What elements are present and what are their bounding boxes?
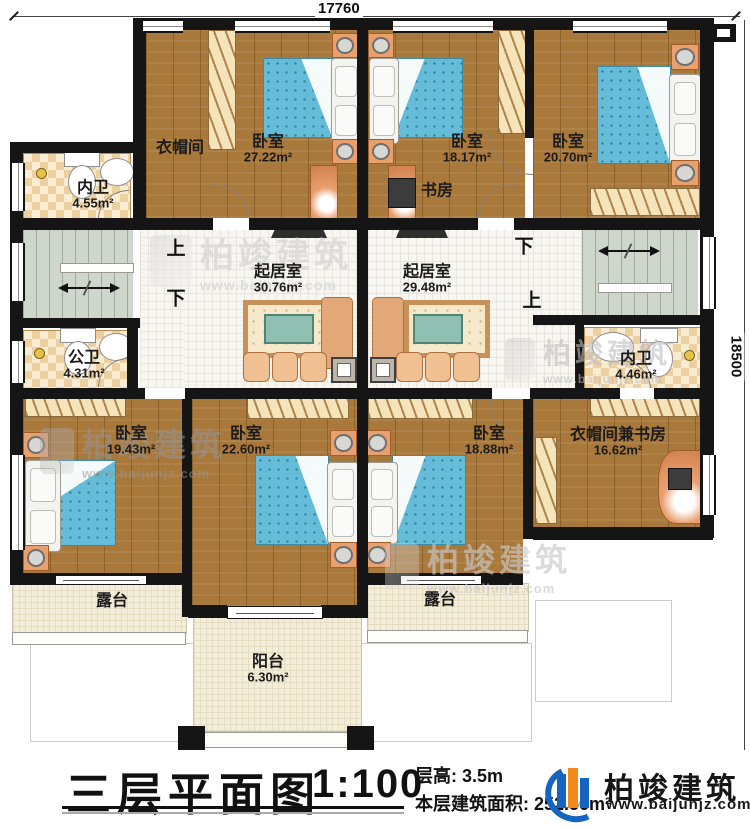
room-area: 19.43m² xyxy=(107,443,155,457)
pillow xyxy=(371,506,394,536)
bed-sheet xyxy=(256,456,328,544)
room-label-gw: 公卫4.31m² xyxy=(63,349,104,380)
wardrobe-cloakroom xyxy=(208,30,236,150)
bed-sheet xyxy=(598,67,670,163)
bed-headboard xyxy=(369,58,399,144)
room-label-rt: 露台 xyxy=(424,591,456,608)
wall xyxy=(10,318,140,328)
stair-label-down-right: 下 xyxy=(514,232,533,259)
logo-building xyxy=(557,768,589,808)
floor-plan: 内卫4.55m² 衣帽间 卧室27.22m² 卧室18.17m² 书房 卧室20… xyxy=(0,0,750,829)
title-underline-2 xyxy=(62,812,404,814)
watermark-logo-icon xyxy=(385,543,419,589)
room-label-b1943: 卧室19.43m² xyxy=(107,425,155,456)
side-table-living-2 xyxy=(370,357,396,383)
terrace-right-railing xyxy=(367,630,528,643)
chimney-inner xyxy=(717,29,730,37)
floor-height-label: 层高: 3.5m xyxy=(415,762,503,788)
watermark-logo-icon xyxy=(40,428,74,474)
wall xyxy=(523,397,533,539)
pillow xyxy=(371,469,394,499)
wall xyxy=(188,605,227,618)
floor-drain xyxy=(684,350,695,361)
dimension-right-value: 18500 xyxy=(727,333,744,381)
door-opening xyxy=(145,388,185,399)
wall xyxy=(525,18,534,138)
coffee-table-living-1 xyxy=(264,314,314,344)
wall xyxy=(10,218,713,230)
room-name: 卧室 xyxy=(443,133,491,150)
room-area: 6.30m² xyxy=(247,671,288,685)
window xyxy=(10,243,25,301)
pillow xyxy=(335,105,356,137)
room-label-nw2: 内卫4.46m² xyxy=(615,350,656,381)
bed-sheet xyxy=(264,59,332,137)
sofa-living-2 xyxy=(396,352,480,382)
room-label-b2070: 卧室20.70m² xyxy=(544,133,592,164)
stair-label-up-left: 上 xyxy=(166,234,185,261)
title-underline xyxy=(62,806,404,809)
bed-sheet xyxy=(394,59,462,137)
dimension-line-top xyxy=(12,16,740,17)
bed-mattress xyxy=(255,455,329,545)
wall xyxy=(127,320,138,396)
bed-mattress xyxy=(597,66,671,164)
watermark-logo-icon xyxy=(505,338,535,380)
stair-rail-left xyxy=(60,263,134,273)
sofa-cushion xyxy=(243,352,270,382)
stair-arrow-line xyxy=(66,287,112,289)
stair-label-up-right: 上 xyxy=(522,286,541,313)
nightstand xyxy=(671,160,699,186)
bed-headboard xyxy=(366,462,398,544)
room-name: 露台 xyxy=(424,591,456,608)
bed-headboard xyxy=(669,74,701,164)
wardrobe-bedroom-1943 xyxy=(25,397,126,417)
stairwell-left xyxy=(23,230,133,319)
balcony-railing xyxy=(200,732,349,748)
nightstand xyxy=(368,33,394,58)
wall xyxy=(321,605,368,618)
window xyxy=(235,19,330,33)
stair-arrow-right xyxy=(650,246,660,256)
dimension-line-right xyxy=(744,20,745,750)
window xyxy=(573,19,667,33)
balcony-post-left xyxy=(178,726,205,750)
plan-scale: 1:100 xyxy=(312,762,424,807)
stairwell-right xyxy=(582,228,698,318)
door-opening xyxy=(620,388,654,399)
wall xyxy=(357,388,368,614)
pillow xyxy=(332,469,355,499)
sofa-cushion xyxy=(396,352,423,382)
room-label-b2722: 卧室27.22m² xyxy=(244,133,292,164)
sliding-door-balcony xyxy=(227,606,323,619)
pillow xyxy=(30,510,56,544)
dimension-top-value: 17760 xyxy=(315,0,363,17)
door-opening xyxy=(492,388,530,399)
wall xyxy=(357,18,368,390)
room-area: 22.60m² xyxy=(222,443,270,457)
room-label-lr2: 起居室29.48m² xyxy=(403,263,451,294)
nightstand xyxy=(368,139,394,164)
pillow xyxy=(674,82,697,115)
window xyxy=(701,237,716,309)
lower-floor-outline-right xyxy=(535,600,672,702)
wall xyxy=(533,315,713,325)
nightstand xyxy=(332,139,358,164)
floor-drain xyxy=(36,168,47,179)
room-area: 30.76m² xyxy=(254,281,302,295)
floor-hall-left xyxy=(140,322,184,388)
wardrobe-bedroom-2070 xyxy=(590,188,700,216)
sofa-cushion xyxy=(300,352,327,382)
room-area: 29.48m² xyxy=(403,281,451,295)
dresser xyxy=(310,165,338,221)
wardrobe-bedroom-1817 xyxy=(498,30,527,134)
brand-logo-icon xyxy=(545,762,597,814)
coffee-table-living-2 xyxy=(413,314,463,344)
room-label-lt: 露台 xyxy=(96,592,128,609)
side-table-living-1 xyxy=(331,357,357,383)
pillow xyxy=(373,66,394,98)
watermark: 柏竣建筑www.baijunjz.com xyxy=(385,535,571,596)
watermark-brand: 柏竣建筑 xyxy=(427,535,571,581)
bed-mattress xyxy=(263,58,333,138)
door-opening xyxy=(478,218,514,230)
pillow xyxy=(332,506,355,536)
pillow xyxy=(373,105,394,137)
room-name: 卧室 xyxy=(544,133,592,150)
room-area: 4.55m² xyxy=(72,197,113,211)
nightstand xyxy=(364,430,391,456)
room-name: 书房 xyxy=(421,182,453,199)
floor-drain xyxy=(34,348,45,359)
watermark-text-block: 柏竣建筑www.baijunjz.com xyxy=(427,535,571,596)
logo-bar xyxy=(557,774,566,808)
wardrobe-bedroom-1888 xyxy=(368,397,473,419)
nightstand xyxy=(330,542,357,568)
room-name: 起居室 xyxy=(254,263,302,280)
window xyxy=(10,341,25,383)
sofa-cushion xyxy=(425,352,452,382)
wardrobe-bedroom-2260 xyxy=(247,397,349,419)
room-label-sf: 书房 xyxy=(421,182,453,199)
logo-bar xyxy=(568,768,578,808)
room-name: 内卫 xyxy=(615,350,656,367)
room-name: 露台 xyxy=(96,592,128,609)
sofa-cushion xyxy=(272,352,299,382)
room-label-lr1: 起居室30.76m² xyxy=(254,263,302,294)
room-area: 4.31m² xyxy=(63,367,104,381)
bed-headboard xyxy=(327,462,359,544)
room-name: 卧室 xyxy=(465,425,513,442)
room-label-b1888: 卧室18.88m² xyxy=(465,425,513,456)
pillow xyxy=(674,123,697,156)
stair-rail-right xyxy=(598,283,672,293)
window xyxy=(143,19,183,33)
stair-label-down-left: 下 xyxy=(166,284,185,311)
pillow xyxy=(335,66,356,98)
room-area: 18.88m² xyxy=(465,443,513,457)
nightstand xyxy=(23,545,49,571)
room-area: 16.62m² xyxy=(570,444,666,458)
stair-arrow-left xyxy=(598,246,608,256)
room-label-ym: 衣帽间 xyxy=(156,139,204,156)
bed-mattress xyxy=(393,58,463,138)
sofa-cushion xyxy=(453,352,480,382)
room-name: 卧室 xyxy=(107,425,155,442)
room-label-b1817: 卧室18.17m² xyxy=(443,133,491,164)
window xyxy=(10,455,25,550)
room-name: 公卫 xyxy=(63,349,104,366)
room-name: 内卫 xyxy=(72,179,113,196)
nightstand xyxy=(332,33,358,58)
window xyxy=(393,19,493,33)
room-area: 18.17m² xyxy=(443,151,491,165)
room-label-nw1: 内卫4.55m² xyxy=(72,179,113,210)
nightstand xyxy=(330,430,357,456)
room-name: 起居室 xyxy=(403,263,451,280)
sliding-door-terrace-left xyxy=(55,575,147,585)
stair-arrow-left xyxy=(58,283,68,293)
window xyxy=(10,163,25,211)
room-area: 4.46m² xyxy=(615,368,656,382)
wall xyxy=(133,18,146,230)
balcony-post-right xyxy=(347,726,374,750)
watermark-site: www.baijunjz.com xyxy=(82,466,226,481)
stair-arrow-right xyxy=(110,283,120,293)
room-label-yt: 阳台6.30m² xyxy=(247,653,288,684)
bed-mattress xyxy=(392,455,466,545)
room-area: 20.70m² xyxy=(544,151,592,165)
cloak-study-computer xyxy=(668,468,692,490)
room-name: 衣帽间 xyxy=(156,139,204,156)
study-computer xyxy=(388,178,416,208)
nightstand xyxy=(671,44,699,70)
logo-bar xyxy=(580,778,589,808)
room-name: 阳台 xyxy=(247,653,288,670)
room-name: 卧室 xyxy=(222,425,270,442)
brand-site: www.baijunjz.com xyxy=(606,796,750,813)
room-name: 衣帽间兼书房 xyxy=(570,426,666,443)
wardrobe-cloak-study-side xyxy=(535,437,557,524)
terrace-left-railing xyxy=(12,632,186,645)
room-area: 27.22m² xyxy=(244,151,292,165)
room-label-ymsf: 衣帽间兼书房16.62m² xyxy=(570,426,666,457)
sofa-living-1 xyxy=(243,352,327,382)
room-label-b2260: 卧室22.60m² xyxy=(222,425,270,456)
bed-sheet xyxy=(393,456,465,544)
wall xyxy=(10,142,135,153)
window xyxy=(701,455,716,515)
room-name: 卧室 xyxy=(244,133,292,150)
